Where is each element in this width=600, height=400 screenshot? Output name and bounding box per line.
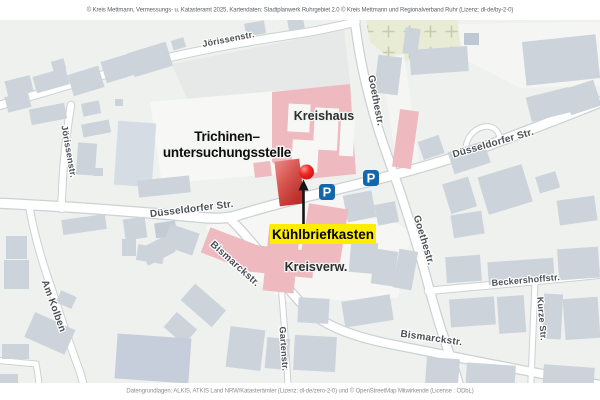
place-label-kreishaus: Kreishaus	[294, 109, 354, 123]
map-canvas: P P Jörissenstr. Jörissenstr. Düsseldorf…	[0, 0, 600, 400]
parking-icon: P	[319, 184, 335, 200]
city-map: P P Jörissenstr. Jörissenstr. Düsseldorf…	[0, 0, 600, 400]
parking-p-glyph: P	[323, 185, 332, 200]
location-marker	[299, 165, 314, 180]
callout-label: Kühlbriefkasten	[270, 224, 376, 244]
callout-text: Kühlbriefkasten	[272, 227, 374, 242]
parking-icon: P	[363, 170, 379, 186]
place-label-kreisverwaltung: Kreisverw.	[285, 260, 348, 274]
attribution-top: © Kreis Mettmann, Vermessungs- u. Katast…	[87, 7, 514, 14]
attribution-bottom: Datengrundlagen: ALKIS, ATKIS Land NRW/K…	[126, 388, 473, 395]
poi-label-line1: Trichinen–	[194, 129, 260, 144]
poi-label-line2: untersuchungsstelle	[163, 145, 292, 160]
parking-p-glyph: P	[367, 171, 376, 186]
